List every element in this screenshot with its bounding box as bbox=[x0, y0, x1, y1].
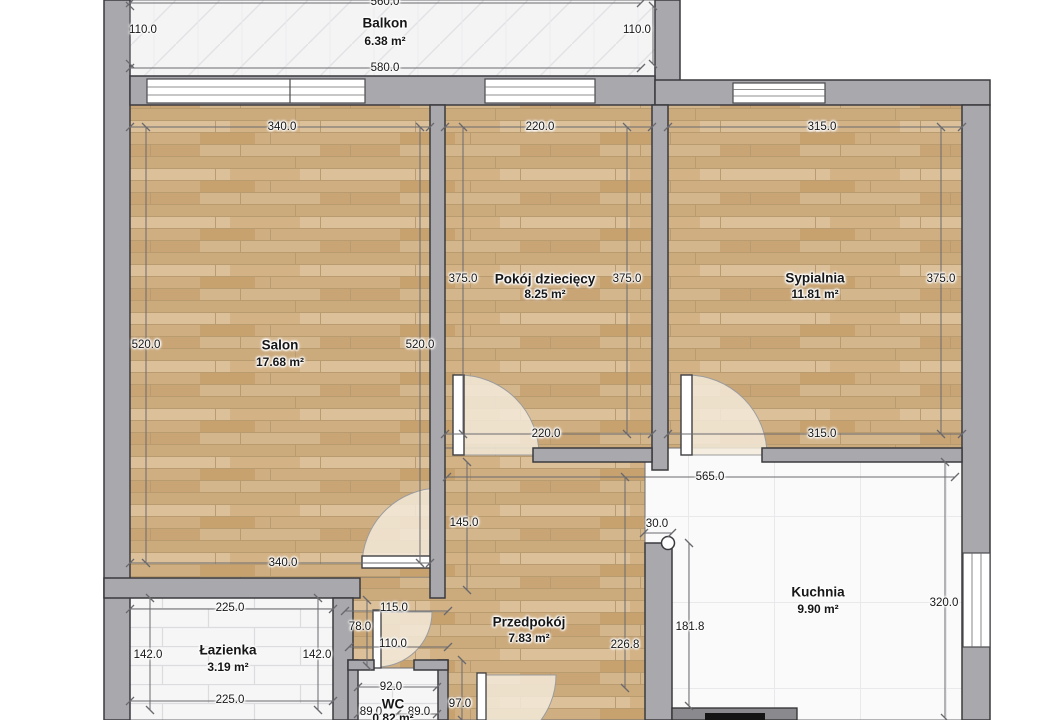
pokoj-window bbox=[485, 79, 595, 103]
kuchnia-window bbox=[963, 553, 990, 647]
pokoj-door-leaf bbox=[453, 375, 464, 455]
kitchen-sink bbox=[705, 713, 765, 720]
lazienka-floor bbox=[130, 598, 333, 720]
wall-salon-pokoj bbox=[430, 105, 445, 598]
floor-plan-drawing bbox=[0, 0, 1048, 720]
wall-salon-bottom bbox=[104, 578, 360, 598]
wall-wc-top-right bbox=[414, 660, 448, 670]
balkon-floor bbox=[130, 0, 655, 76]
przedpokoj-door-swing bbox=[481, 675, 556, 720]
przedpokoj-door-leaf bbox=[477, 673, 486, 720]
wall-end-marker bbox=[662, 537, 675, 550]
wall-przedpokoj-kuchnia bbox=[645, 543, 672, 720]
wall-pokoj-sypialnia bbox=[652, 105, 668, 470]
sypialnia-door-leaf bbox=[681, 375, 692, 455]
salon-floor bbox=[130, 105, 430, 578]
salon-door-opening-floor bbox=[360, 578, 430, 598]
kuchnia-floor bbox=[645, 448, 962, 720]
sypialnia-window bbox=[733, 83, 825, 103]
wall-sypialnia-bottom bbox=[762, 448, 962, 462]
floors bbox=[130, 0, 962, 720]
wall-pokoj-bottom bbox=[533, 448, 652, 462]
floor-plan: 560.0110.0110.0580.0340.0220.0315.0520.0… bbox=[0, 0, 1048, 720]
salon-door-leaf bbox=[362, 556, 440, 568]
salon-window bbox=[147, 79, 365, 103]
